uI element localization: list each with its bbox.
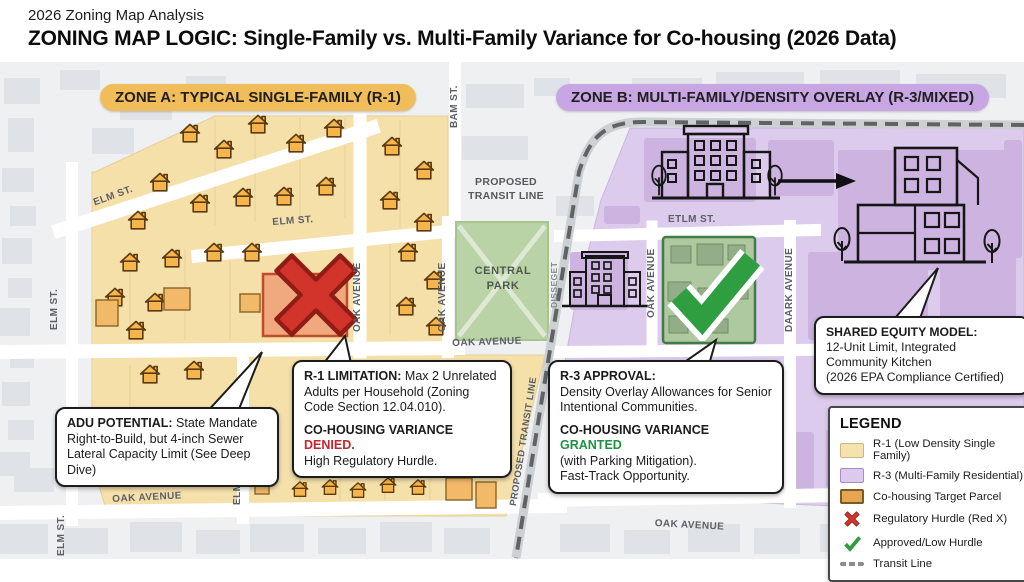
street-label-etlm: ETLM ST. (668, 214, 716, 225)
building-block (444, 528, 490, 554)
street-label-elm-corner: ELM ST. (56, 515, 67, 556)
legend-item-transit: Transit Line (840, 558, 1024, 570)
r1-swatch (840, 443, 864, 458)
building-block (4, 78, 40, 104)
red-x-icon (840, 510, 864, 528)
header-kicker: 2026 Zoning Map Analysis (28, 7, 204, 24)
building-block (2, 168, 34, 192)
zone-a-name: TYPICAL SINGLE-FAMILY (R-1) (180, 89, 401, 106)
street-label-daark: DAARK AVENUE (784, 248, 795, 332)
callout-adu-potential: ADU POTENTIAL: State Mandate Right-to-Bu… (55, 407, 279, 487)
green-check-icon (840, 534, 864, 552)
building-block (604, 206, 640, 224)
callout-r3-approval: R-3 APPROVAL: Density Overlay Allowances… (548, 360, 784, 494)
header: 2026 Zoning Map Analysis ZONING MAP LOGI… (0, 0, 1024, 62)
building-block (10, 206, 36, 226)
street-label-elm-left: ELM ST. (49, 289, 60, 330)
central-park-label: CENTRAL PARK (460, 264, 546, 294)
building-block (624, 530, 670, 554)
legend-item-approved: Approved/Low Hurdle (840, 534, 1024, 552)
building-block (0, 308, 30, 336)
street-label-oak-vertical-a: OAK AVENUE (352, 262, 363, 332)
legend-item-r1: R-1 (Low Density Single Family) (840, 438, 1024, 462)
building-block (14, 468, 54, 492)
zone-a-pill: ZONE A: TYPICAL SINGLE-FAMILY (R-1) (100, 84, 416, 111)
zone-b-prefix: ZONE B: (571, 89, 633, 106)
zoning-map-infographic: 2026 Zoning Map Analysis ZONING MAP LOGI… (0, 0, 1024, 559)
building-block (250, 524, 304, 552)
building-block (1004, 140, 1022, 258)
building-block (2, 382, 30, 406)
transit-line-icon (840, 562, 864, 566)
building-block (754, 528, 800, 554)
street-label-oak-vertical-b: OAK AVENUE (646, 248, 657, 318)
street-label-disseget: DISSEGET (549, 262, 559, 308)
building-block (318, 528, 366, 554)
cohousing-swatch (840, 489, 864, 504)
callout-r1-limitation: R-1 LIMITATION: Max 2 Unrelated Adults p… (292, 360, 512, 478)
street-label-bam: BAM ST. (449, 85, 460, 128)
zone-a-prefix: ZONE A: (115, 89, 176, 106)
callout-shared-equity: SHARED EQUITY MODEL: 12-Unit Limit, Inte… (814, 316, 1024, 395)
r3-swatch (840, 468, 864, 483)
building-block (560, 524, 610, 552)
street-label-oak-park: OAK AVENUE (437, 262, 448, 332)
building-block (8, 420, 34, 440)
building-block (92, 128, 134, 154)
building-block (2, 238, 32, 264)
legend-item-cohousing: Co-housing Target Parcel (840, 489, 1024, 504)
building-block (462, 136, 528, 160)
building-block (130, 522, 182, 552)
building-block (768, 140, 834, 196)
building-block (380, 522, 432, 552)
building-block (8, 118, 34, 152)
page-title: ZONING MAP LOGIC: Single-Family vs. Mult… (28, 27, 896, 51)
legend: LEGEND R-1 (Low Density Single Family) R… (828, 406, 1024, 582)
legend-item-r3: R-3 (Multi-Family Residential) (840, 468, 1024, 483)
building-block (466, 84, 524, 108)
building-block (64, 528, 108, 554)
building-block (60, 70, 100, 90)
proposed-transit-label: PROPOSED TRANSIT LINE (452, 176, 560, 203)
legend-item-hurdle: Regulatory Hurdle (Red X) (840, 510, 1024, 528)
legend-title: LEGEND (840, 416, 1024, 432)
zone-b-name: MULTI-FAMILY/DENSITY OVERLAY (R-3/MIXED) (637, 89, 974, 106)
building-block (0, 524, 48, 554)
zone-b-pill: ZONE B: MULTI-FAMILY/DENSITY OVERLAY (R-… (556, 84, 989, 111)
denied-status: DENIED. (304, 438, 355, 452)
building-block (8, 278, 32, 298)
granted-status: GRANTED (560, 438, 622, 452)
building-block (196, 530, 240, 554)
